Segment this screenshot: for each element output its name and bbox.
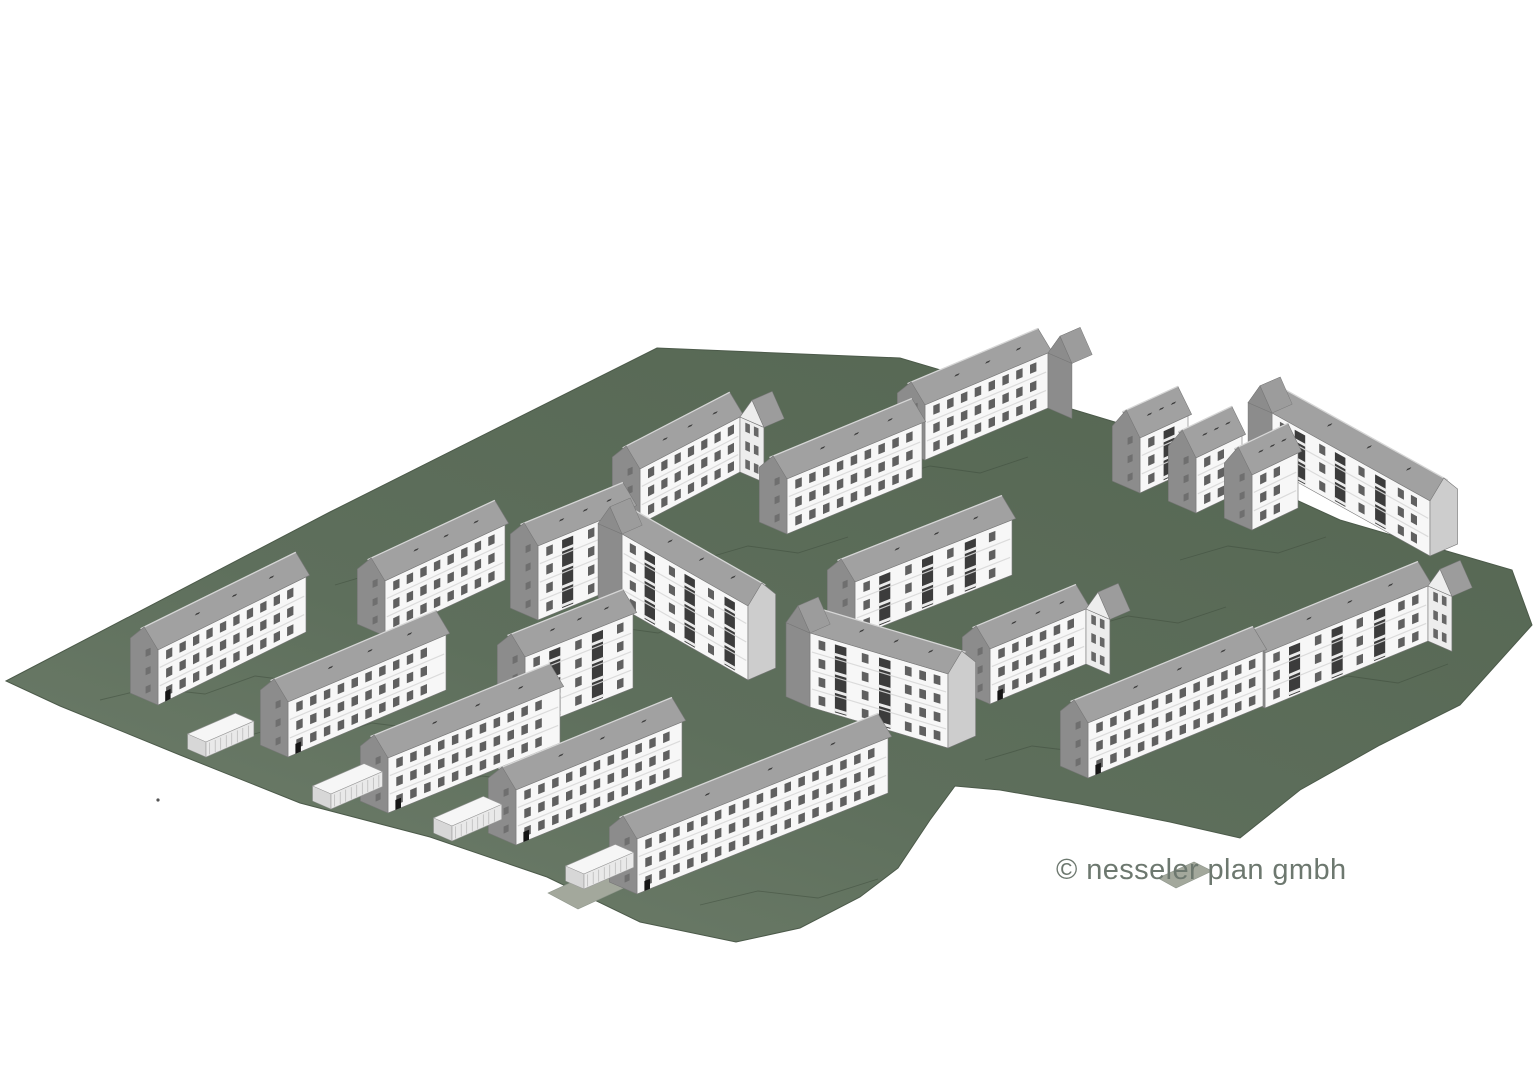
balcony-strip xyxy=(922,555,933,609)
wing-wall xyxy=(1428,586,1452,651)
site-plan-rendering: © nesseler plan gmbh xyxy=(0,0,1536,1075)
wing-wall xyxy=(1086,609,1110,674)
site-rendering-svg xyxy=(0,0,1536,1075)
stray-dot xyxy=(156,798,159,801)
balcony-strip xyxy=(1289,643,1300,697)
balcony-strip xyxy=(965,538,976,591)
wing-wall xyxy=(1048,353,1072,418)
wing-wall xyxy=(786,623,810,707)
balcony-strip xyxy=(1332,625,1343,679)
balcony-strip xyxy=(1374,608,1385,662)
copyright-text: © nesseler plan gmbh xyxy=(1056,855,1347,887)
balcony-strip xyxy=(879,572,890,626)
